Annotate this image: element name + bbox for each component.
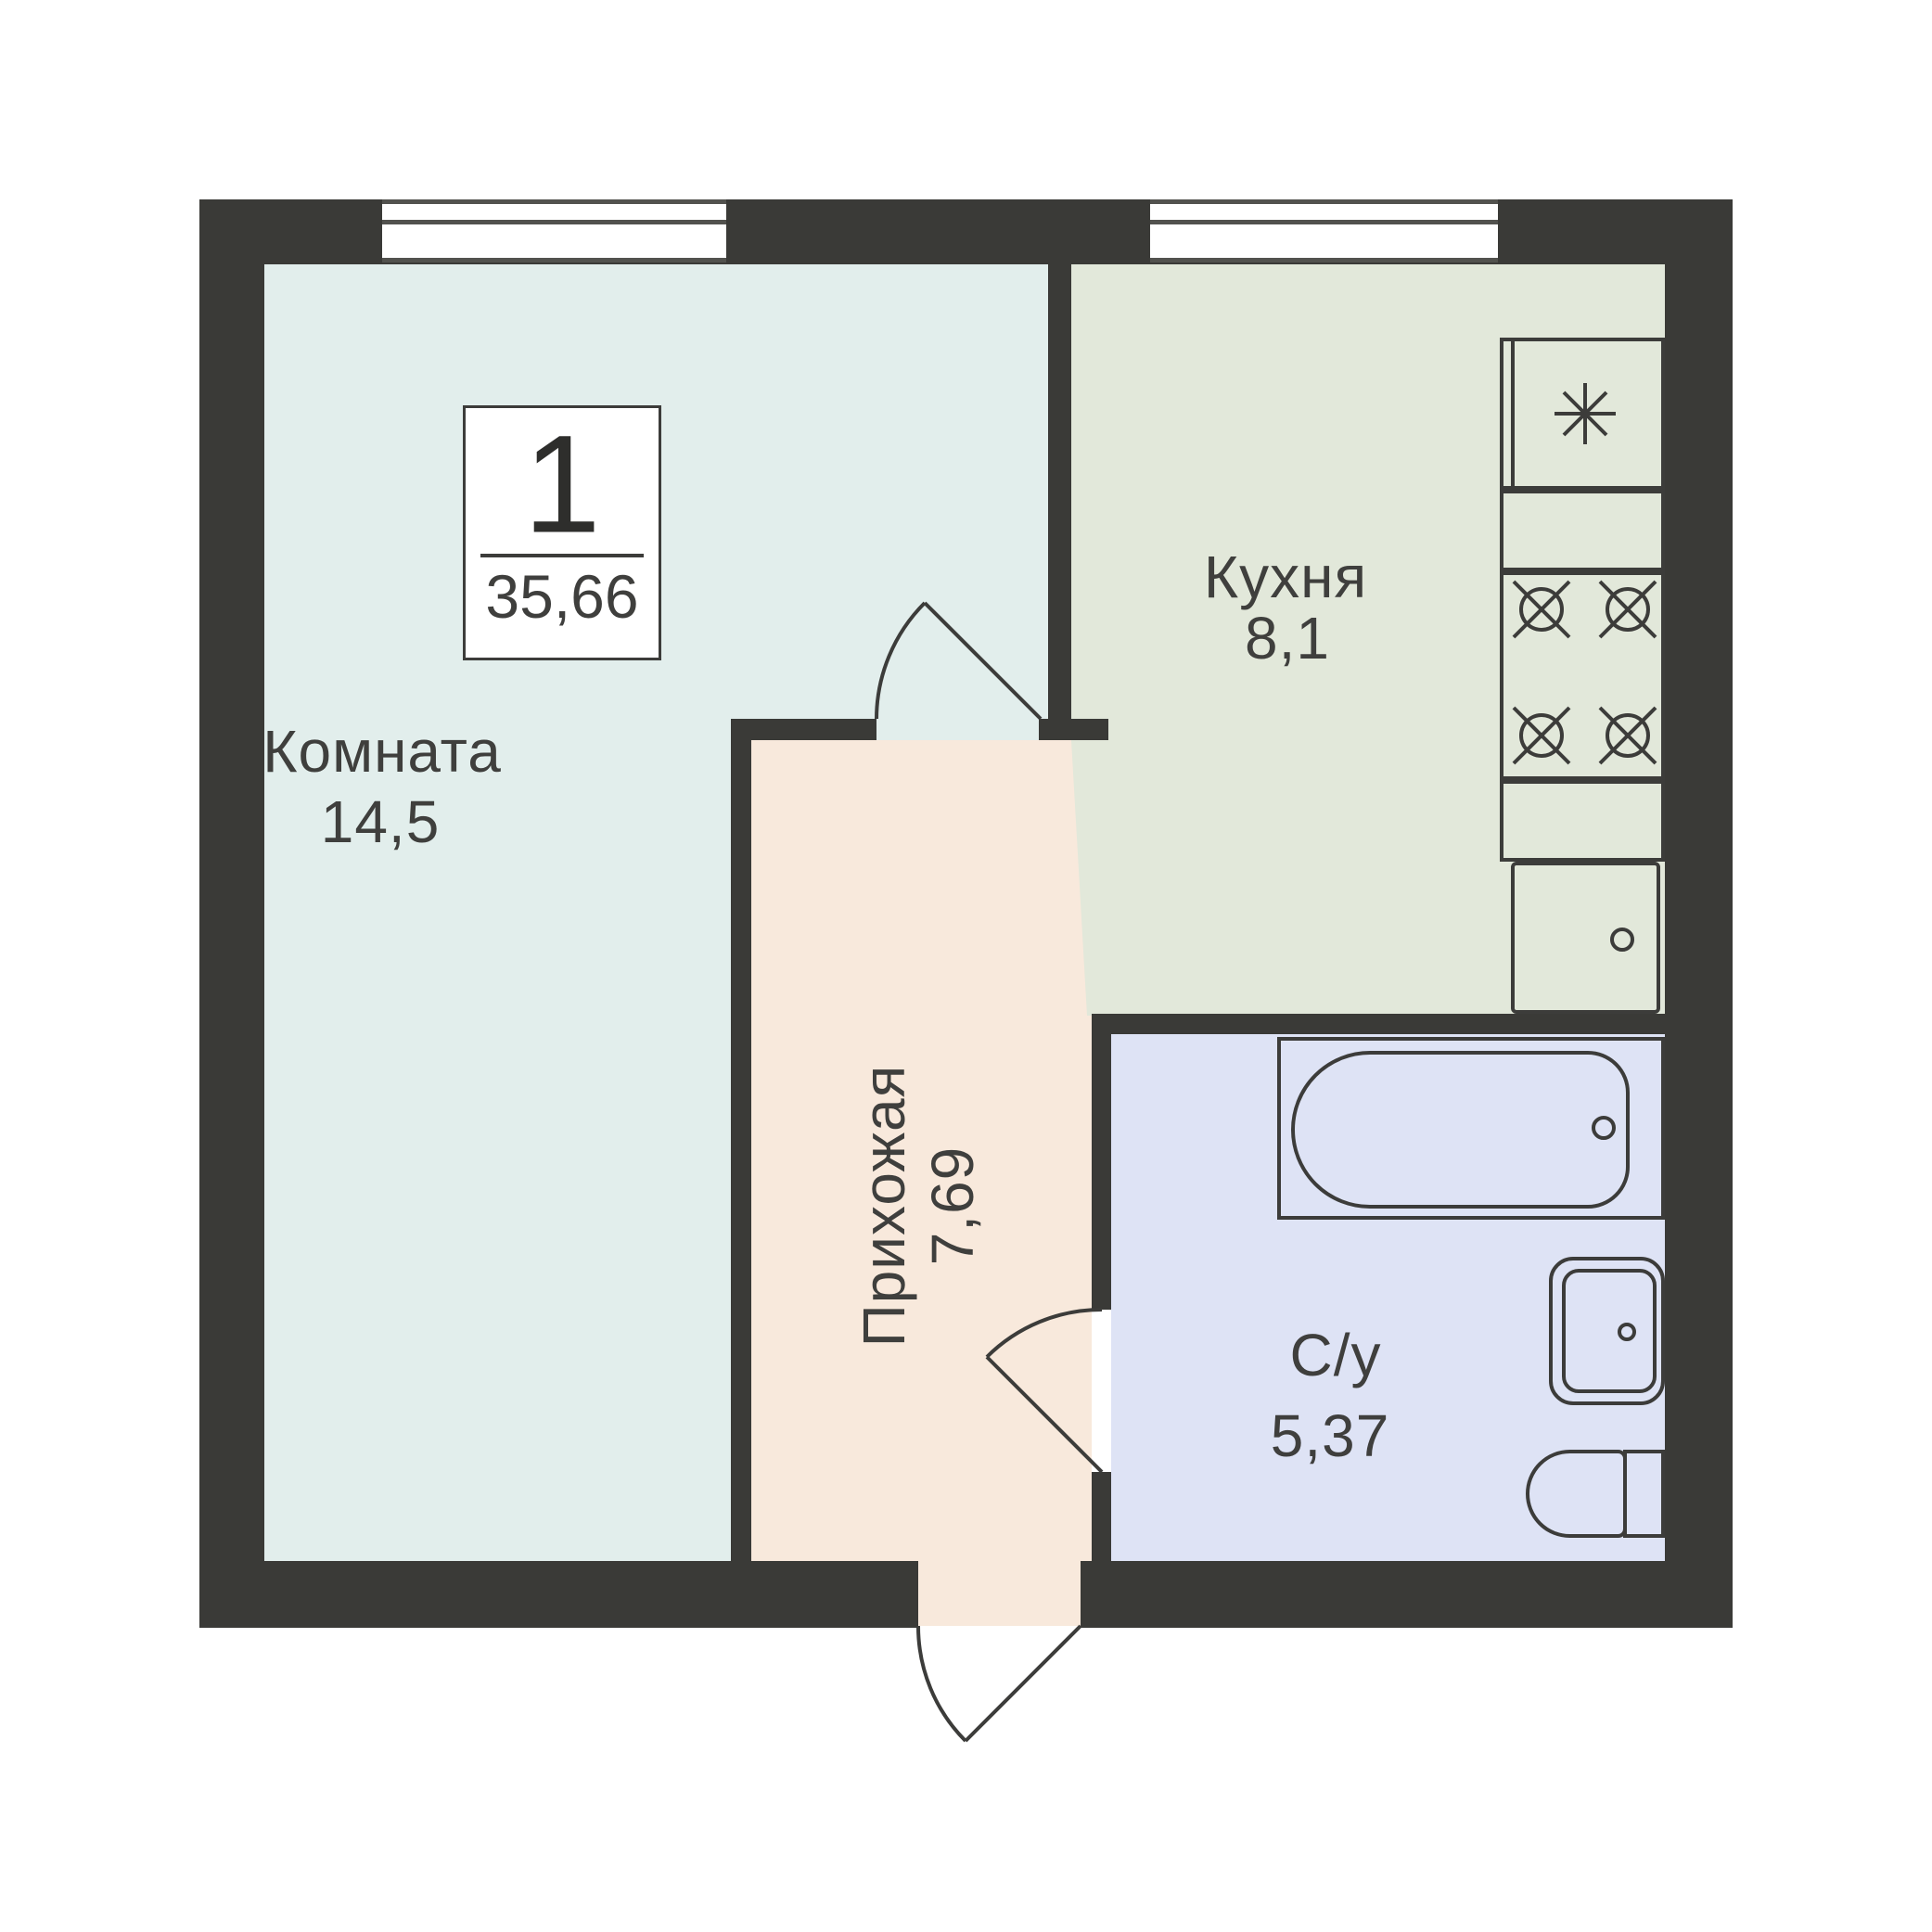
kitchen-name-label: Кухня: [1204, 543, 1367, 611]
kitchen-counter-2: [1500, 780, 1665, 862]
wall-room-hallway: [731, 719, 751, 1561]
wall-end-cap: [1039, 719, 1108, 740]
badge-room-count: 1: [523, 404, 600, 565]
bathroom-sink-faucet-icon: [1618, 1323, 1636, 1341]
hallway-area-label: 7,69: [918, 1065, 987, 1348]
room-area-label: 14,5: [321, 787, 441, 856]
bathroom-name-label: С/у: [1290, 1321, 1382, 1389]
entrance-door-opening: [918, 1561, 1081, 1626]
wall-bottom-right-segment: [1081, 1561, 1733, 1628]
kitchen-area-label: 8,1: [1245, 604, 1330, 672]
kitchen-counter: [1500, 490, 1665, 571]
fridge-door-line: [1511, 338, 1515, 490]
hallway-label-group: Прихожая 7,69: [850, 1065, 987, 1348]
bathroom-sink-basin: [1562, 1269, 1657, 1393]
toilet-bowl: [1526, 1450, 1627, 1538]
fridge: [1500, 338, 1665, 490]
wall-left: [199, 199, 264, 1628]
badge-total-area: 35,66: [485, 561, 638, 632]
window-room: [382, 199, 726, 262]
kitchen-sink-drain-icon: [1610, 928, 1634, 952]
room-name-label: Комната: [262, 717, 502, 786]
wall-room-kitchen: [1048, 264, 1071, 719]
wall-bottom-left-segment: [199, 1561, 918, 1628]
wall-bathroom-left-lower: [1092, 1472, 1111, 1561]
kitchen-sink: [1511, 862, 1660, 1014]
wall-hallway-top: [731, 719, 876, 740]
window-frame-line: [382, 220, 726, 224]
stove: [1500, 571, 1665, 780]
apartment-badge: 1 35,66: [463, 405, 661, 660]
wall-right: [1665, 199, 1733, 1628]
badge-divider: [480, 554, 644, 557]
door-entrance: [918, 1626, 1081, 1741]
toilet-tank: [1623, 1450, 1665, 1538]
floor-plan-canvas: 1 35,66 Комната 14,5 Кухня 8,1 Прихожая …: [0, 0, 1932, 1932]
window-kitchen: [1150, 199, 1498, 262]
hallway-floor-upper: [751, 740, 1087, 1016]
bathtub-drain-icon: [1592, 1116, 1616, 1140]
wall-bathroom-left-upper: [1092, 1014, 1111, 1310]
wall-bathroom-top: [1092, 1014, 1665, 1034]
window-frame-line: [1150, 220, 1498, 224]
bathroom-area-label: 5,37: [1271, 1401, 1390, 1470]
bathtub: [1291, 1051, 1630, 1209]
hallway-name-label: Прихожая: [850, 1065, 918, 1348]
